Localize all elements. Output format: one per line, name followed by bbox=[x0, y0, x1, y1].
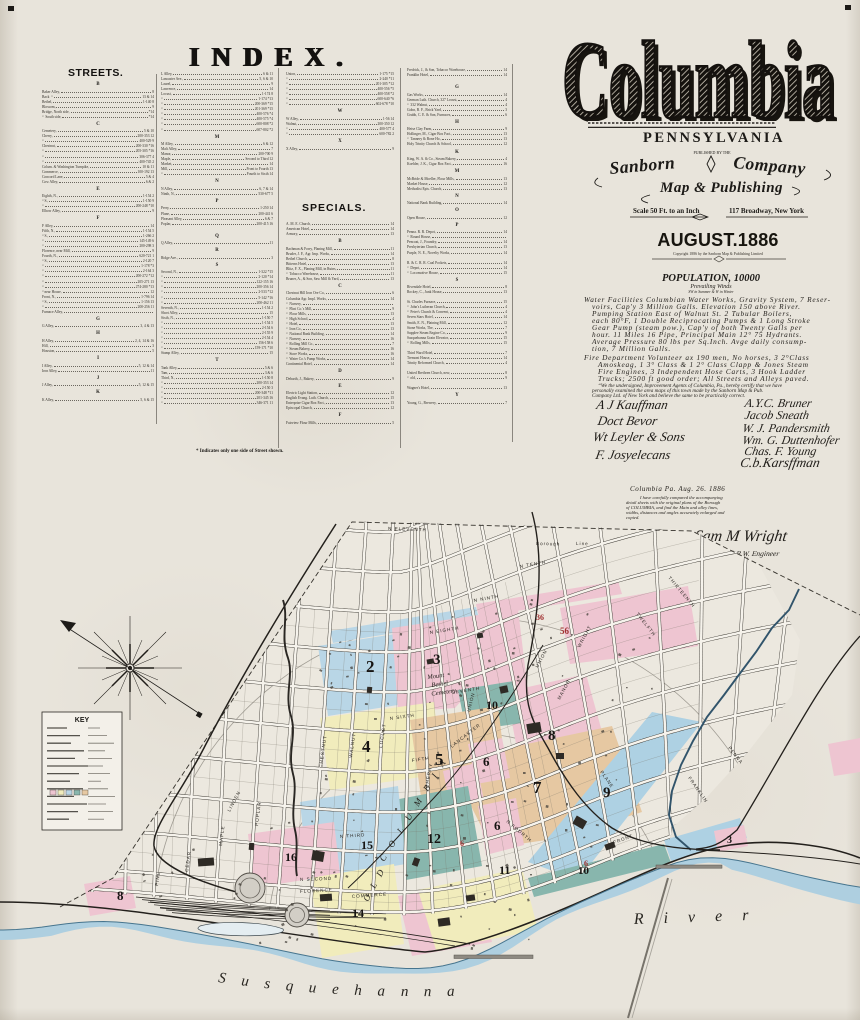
svg-text:Jacob Sneath: Jacob Sneath bbox=[744, 408, 811, 422]
svg-text:6: 6 bbox=[460, 839, 464, 848]
svg-text:5: 5 bbox=[435, 750, 444, 769]
svg-text:SW in Summer & W in Winter: SW in Summer & W in Winter bbox=[688, 290, 734, 294]
svg-text:Map & Publishing: Map & Publishing bbox=[659, 180, 783, 196]
svg-text:6: 6 bbox=[494, 818, 501, 833]
svg-text:Sanborn: Sanborn bbox=[609, 152, 676, 178]
svg-text:tion, 7 Million Galls.: tion, 7 Million Galls. bbox=[592, 344, 671, 353]
svg-text:copied.: copied. bbox=[626, 515, 639, 520]
svg-text:6: 6 bbox=[584, 859, 588, 868]
svg-text:36: 36 bbox=[536, 613, 544, 622]
svg-text:15: 15 bbox=[361, 838, 373, 852]
svg-text:widths, distances and angles a: widths, distances and angles accurately … bbox=[626, 510, 725, 516]
svg-text:KEY: KEY bbox=[75, 717, 90, 724]
svg-text:3: 3 bbox=[433, 652, 441, 668]
svg-text:Company: Company bbox=[733, 152, 807, 178]
svg-text:AUGUST.1886: AUGUST.1886 bbox=[657, 230, 778, 250]
svg-text:POPULATION, 10000: POPULATION, 10000 bbox=[662, 273, 761, 284]
svg-text:14: 14 bbox=[352, 906, 364, 920]
svg-text:A J Kauffman: A J Kauffman bbox=[594, 397, 669, 412]
svg-text:R i v e r: R i v e r bbox=[633, 907, 757, 928]
svg-text:12: 12 bbox=[427, 832, 441, 847]
svg-text:9: 9 bbox=[603, 785, 611, 801]
svg-text:11: 11 bbox=[499, 863, 510, 877]
svg-text:F. Josyelecans: F. Josyelecans bbox=[594, 447, 672, 462]
svg-text:Copyright 1886 by the Sanborn: Copyright 1886 by the Sanborn Map & Publ… bbox=[673, 252, 763, 256]
svg-text:Wt Leyler & Sons: Wt Leyler & Sons bbox=[592, 429, 687, 444]
svg-text:Line: Line bbox=[576, 541, 589, 546]
svg-text:2: 2 bbox=[366, 657, 375, 676]
svg-text:6: 6 bbox=[483, 754, 490, 769]
svg-text:4: 4 bbox=[362, 737, 371, 756]
svg-text:3: 3 bbox=[727, 835, 732, 846]
svg-text:Doct Bevor: Doct Bevor bbox=[596, 413, 660, 428]
svg-text:PUBLISHED BY THE: PUBLISHED BY THE bbox=[693, 150, 731, 155]
svg-text:Trucks; 2500 ft good order; Al: Trucks; 2500 ft good order; All Streets … bbox=[598, 374, 809, 383]
svg-text:Scale 50 Ft. to an Inch: Scale 50 Ft. to an Inch bbox=[633, 207, 700, 215]
svg-text:8: 8 bbox=[117, 888, 124, 903]
svg-text:S u s q u e h a n n a: S u s q u e h a n n a bbox=[217, 970, 460, 1000]
svg-text:7: 7 bbox=[533, 778, 542, 797]
svg-text:117 Broadway, New York: 117 Broadway, New York bbox=[729, 207, 804, 215]
svg-text:10: 10 bbox=[486, 698, 498, 712]
svg-text:Borough: Borough bbox=[536, 541, 560, 546]
svg-text:PENNSYLVANIA: PENNSYLVANIA bbox=[643, 130, 785, 146]
svg-text:16: 16 bbox=[285, 850, 297, 864]
svg-text:Columbia Pa. Aug. 26. 1886: Columbia Pa. Aug. 26. 1886 bbox=[630, 485, 725, 493]
svg-text:56: 56 bbox=[560, 626, 570, 636]
svg-text:C.b.Karsffman: C.b.Karsffman bbox=[739, 455, 821, 470]
svg-text:8: 8 bbox=[548, 728, 556, 744]
